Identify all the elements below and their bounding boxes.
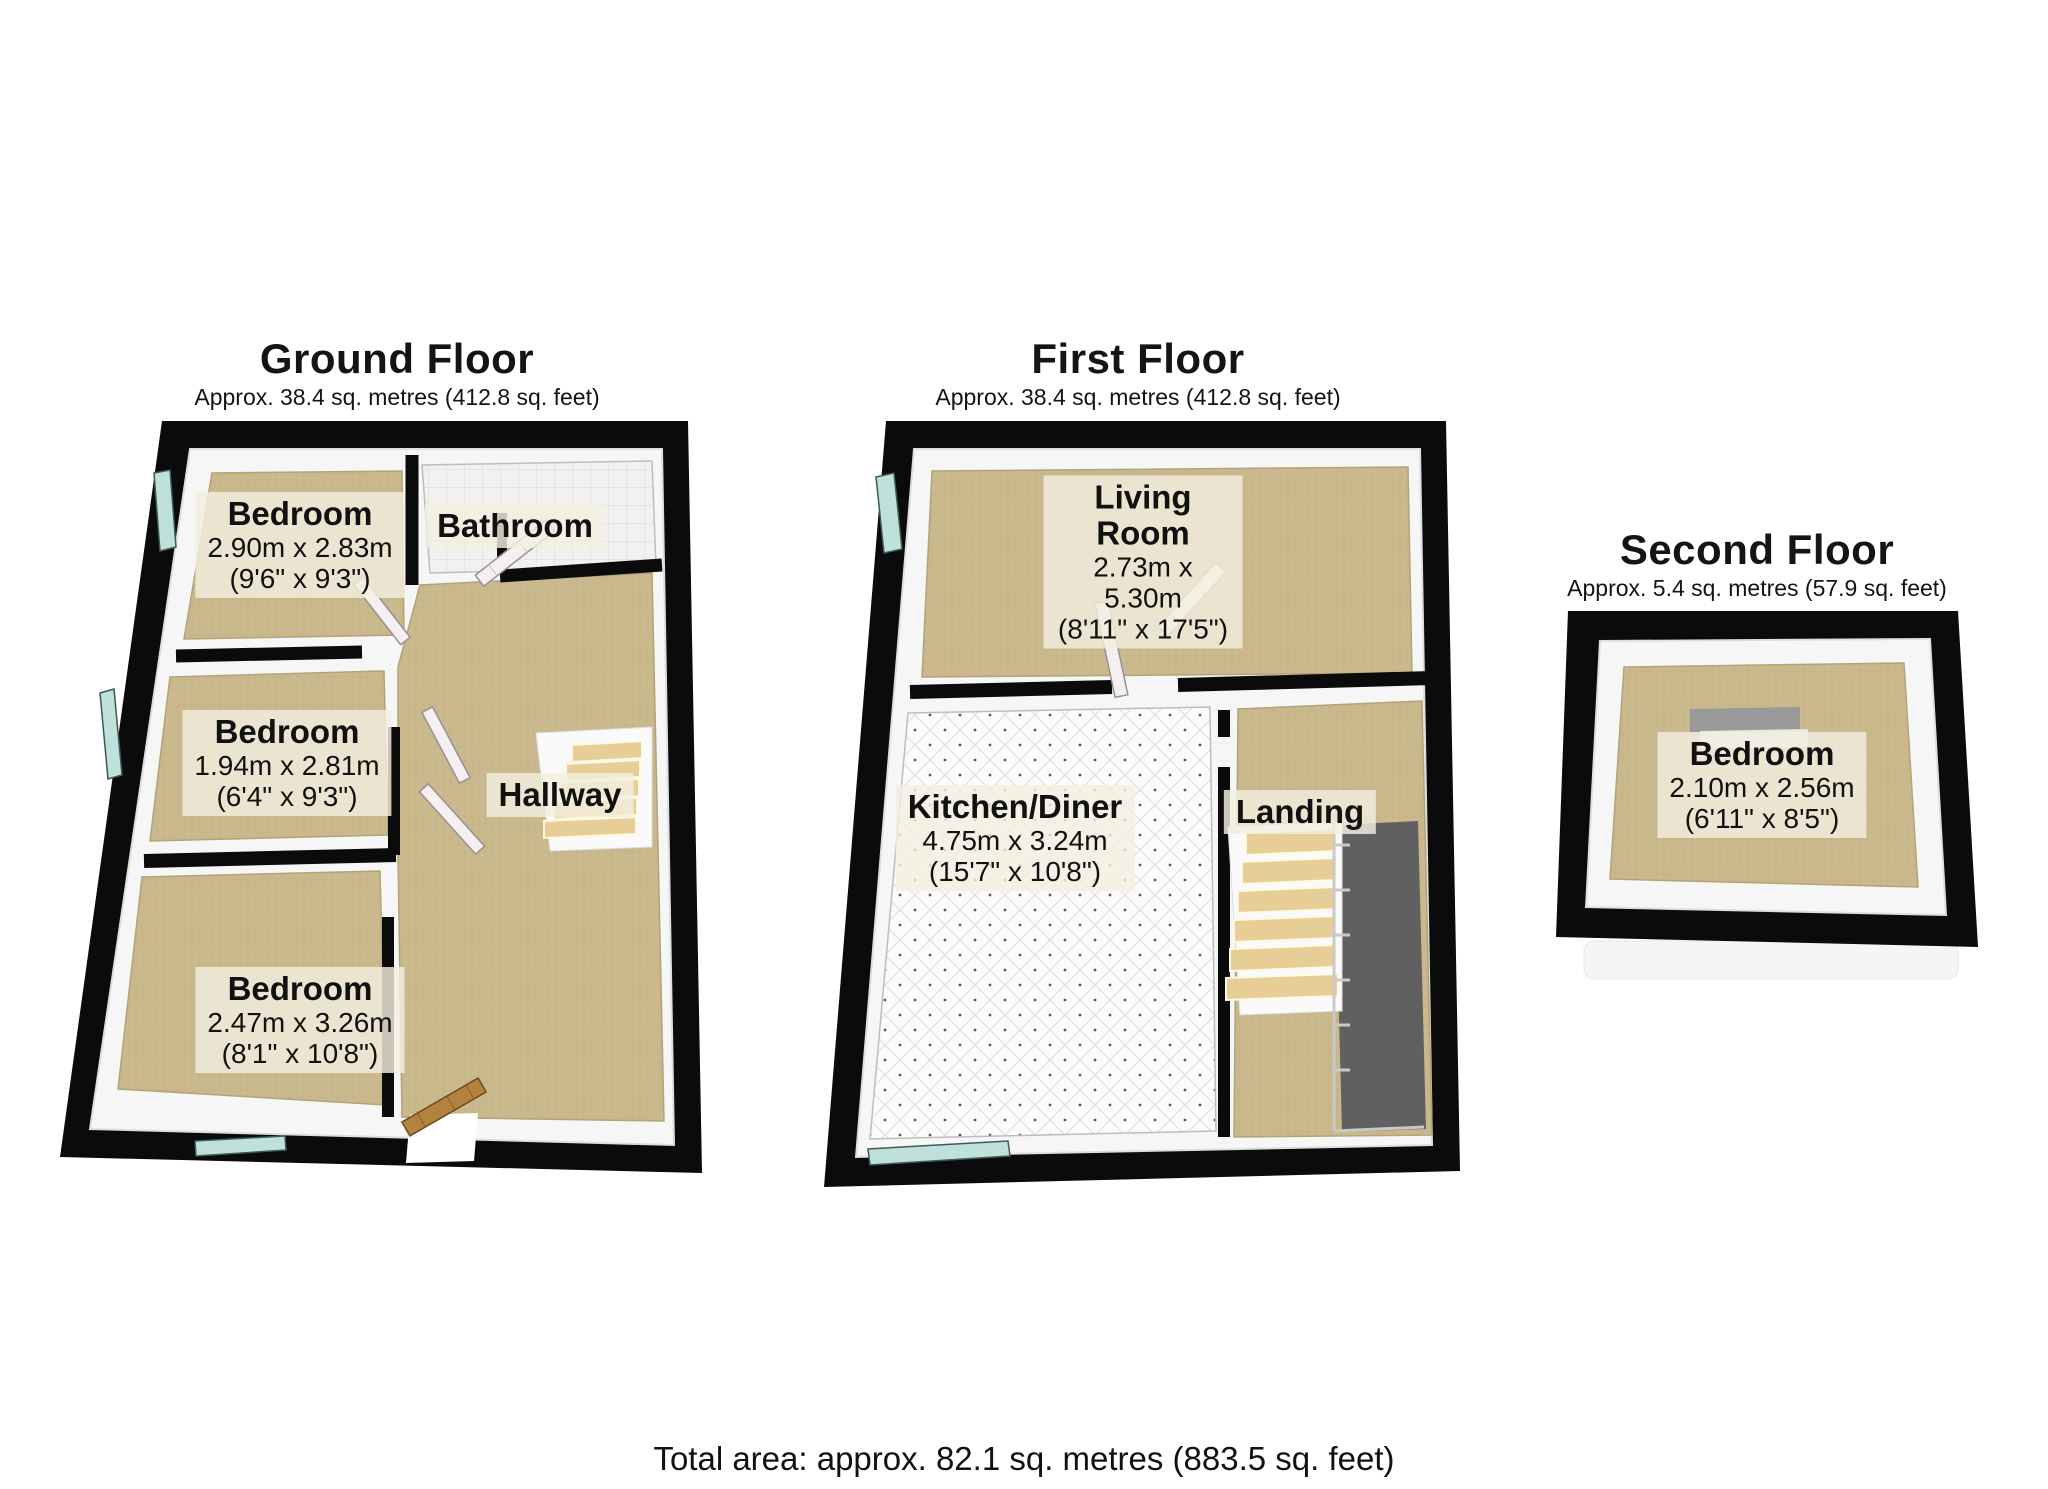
first-floor-title-block: First Floor Approx. 38.4 sq. metres (412…: [838, 337, 1438, 410]
second-floor-area: Approx. 5.4 sq. metres (57.9 sq. feet): [1457, 575, 2048, 601]
ground-floor-title: Ground Floor: [97, 337, 697, 381]
second-floor-title-block: Second Floor Approx. 5.4 sq. metres (57.…: [1457, 528, 2048, 601]
floor-slab-shadow: [1584, 941, 1958, 979]
second-floor-title: Second Floor: [1457, 528, 2048, 572]
stairwell-opening: [1334, 821, 1426, 1132]
room-label-bathroom: Bathroom: [425, 504, 605, 548]
room-label-bedroom-gf-1: Bedroom 2.90m x 2.83m (9'6" x 9'3"): [195, 492, 404, 598]
room-label-kitchen-diner: Kitchen/Diner 4.75m x 3.24m (15'7" x 10'…: [896, 785, 1135, 891]
room-label-landing: Landing: [1224, 790, 1376, 834]
room-label-bedroom-gf-3: Bedroom 2.47m x 3.26m (8'1" x 10'8"): [195, 967, 404, 1073]
staircase: [1226, 822, 1342, 1015]
room-label-bedroom-sf: Bedroom 2.10m x 2.56m (6'11" x 8'5"): [1657, 732, 1866, 838]
total-area-text: Total area: approx. 82.1 sq. metres (883…: [0, 1440, 2048, 1478]
ground-floor-title-block: Ground Floor Approx. 38.4 sq. metres (41…: [97, 337, 697, 410]
kitchen-floor: [870, 707, 1216, 1139]
first-floor-title: First Floor: [838, 337, 1438, 381]
first-floor-area: Approx. 38.4 sq. metres (412.8 sq. feet): [838, 384, 1438, 410]
ground-floor-area: Approx. 38.4 sq. metres (412.8 sq. feet): [97, 384, 697, 410]
floorplan-image: Ground Floor Approx. 38.4 sq. metres (41…: [0, 0, 2048, 1489]
room-label-hallway: Hallway: [487, 773, 634, 817]
window: [100, 689, 122, 779]
room-label-living-room: Living Room 2.73m x 5.30m (8'11" x 17'5"…: [1044, 476, 1243, 649]
room-label-bedroom-gf-2: Bedroom 1.94m x 2.81m (6'4" x 9'3"): [182, 710, 391, 816]
